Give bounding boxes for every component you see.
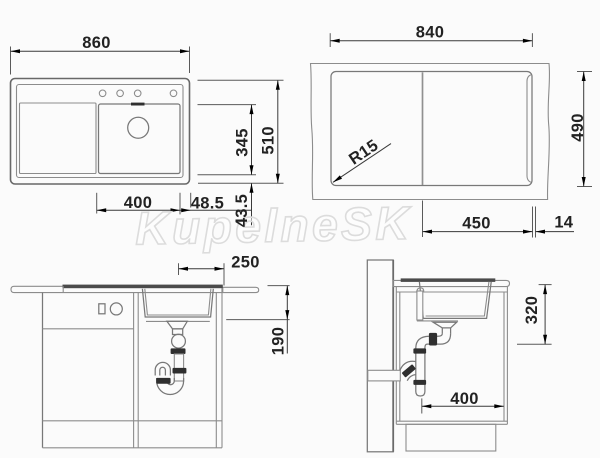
- svg-text:490: 490: [569, 113, 587, 141]
- svg-text:400: 400: [450, 390, 478, 408]
- svg-text:510: 510: [259, 126, 277, 154]
- svg-text:14: 14: [554, 214, 573, 232]
- svg-text:860: 860: [82, 34, 110, 52]
- svg-text:320: 320: [523, 296, 541, 324]
- svg-text:43.5: 43.5: [233, 194, 251, 227]
- svg-text:840: 840: [416, 24, 444, 42]
- svg-text:250: 250: [231, 253, 259, 271]
- svg-text:345: 345: [233, 128, 251, 156]
- svg-text:190: 190: [270, 327, 288, 355]
- svg-text:450: 450: [462, 215, 490, 233]
- svg-text:KupelneSK: KupelneSK: [135, 197, 413, 255]
